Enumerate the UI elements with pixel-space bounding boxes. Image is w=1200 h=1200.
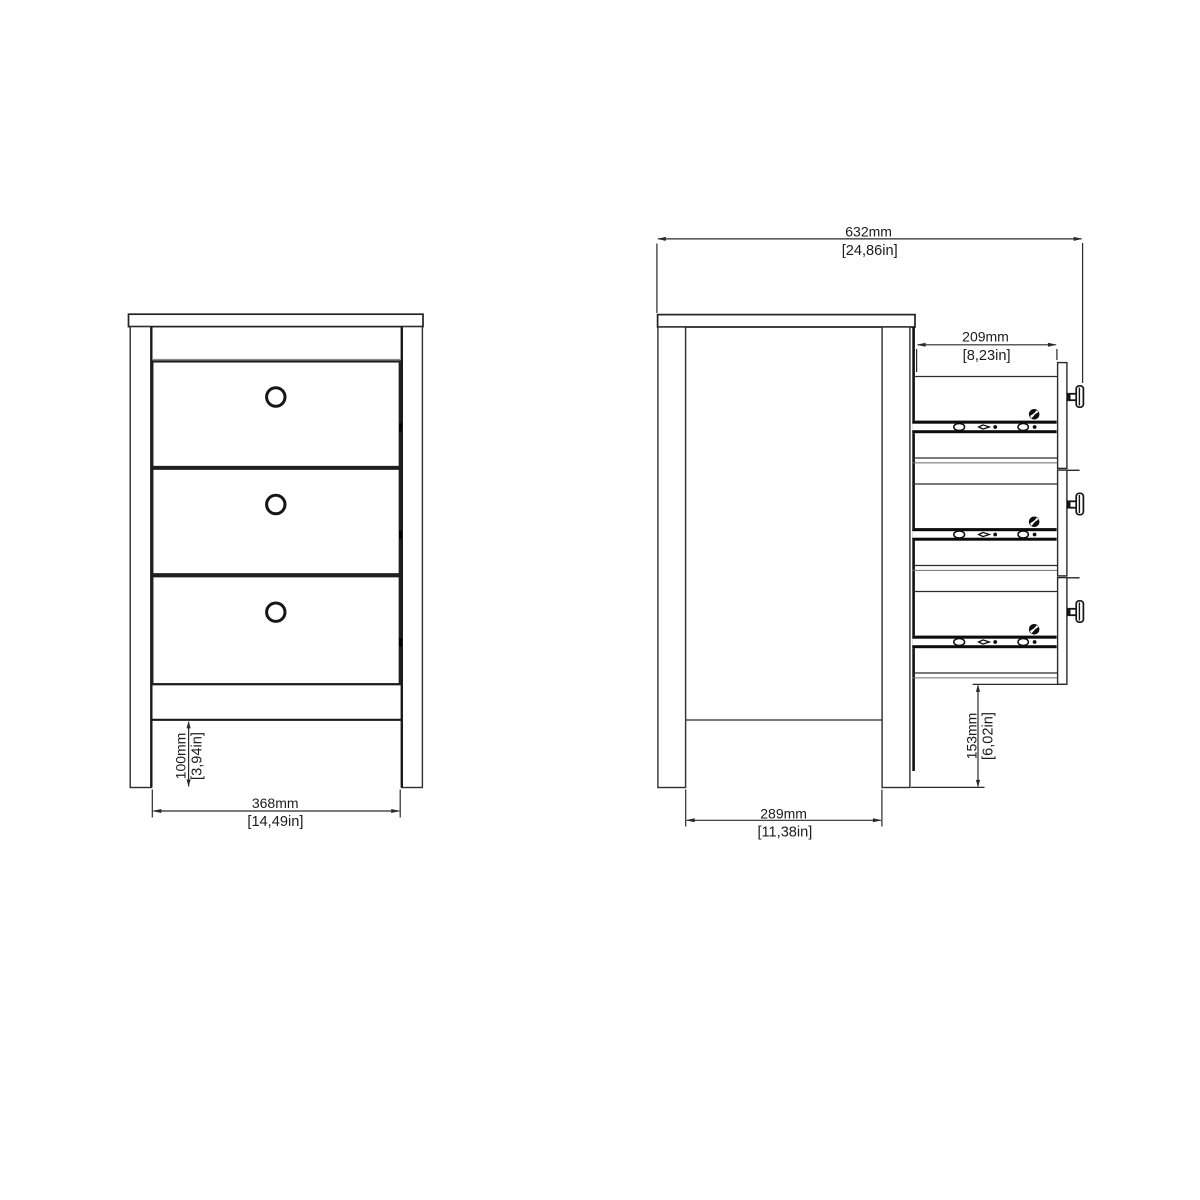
svg-text:368mm: 368mm — [252, 795, 299, 811]
svg-text:632mm: 632mm — [845, 223, 892, 239]
svg-text:[6,02in]: [6,02in] — [980, 712, 996, 760]
svg-text:[14,49in]: [14,49in] — [247, 814, 303, 830]
svg-text:209mm: 209mm — [962, 329, 1009, 345]
svg-text:[11,38in]: [11,38in] — [757, 825, 812, 841]
svg-text:100mm: 100mm — [173, 733, 189, 780]
svg-text:289mm: 289mm — [760, 805, 807, 821]
svg-text:[8,23in]: [8,23in] — [963, 348, 1011, 364]
svg-text:[3,94in]: [3,94in] — [190, 732, 206, 780]
svg-text:[24,86in]: [24,86in] — [842, 243, 898, 259]
svg-text:153mm: 153mm — [963, 713, 979, 760]
